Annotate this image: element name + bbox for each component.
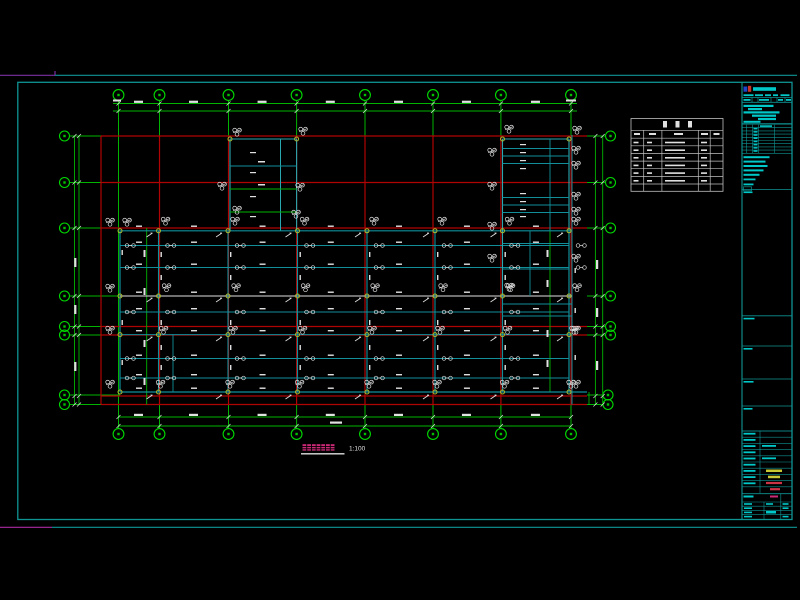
svg-text:1:100: 1:100 xyxy=(349,446,366,453)
